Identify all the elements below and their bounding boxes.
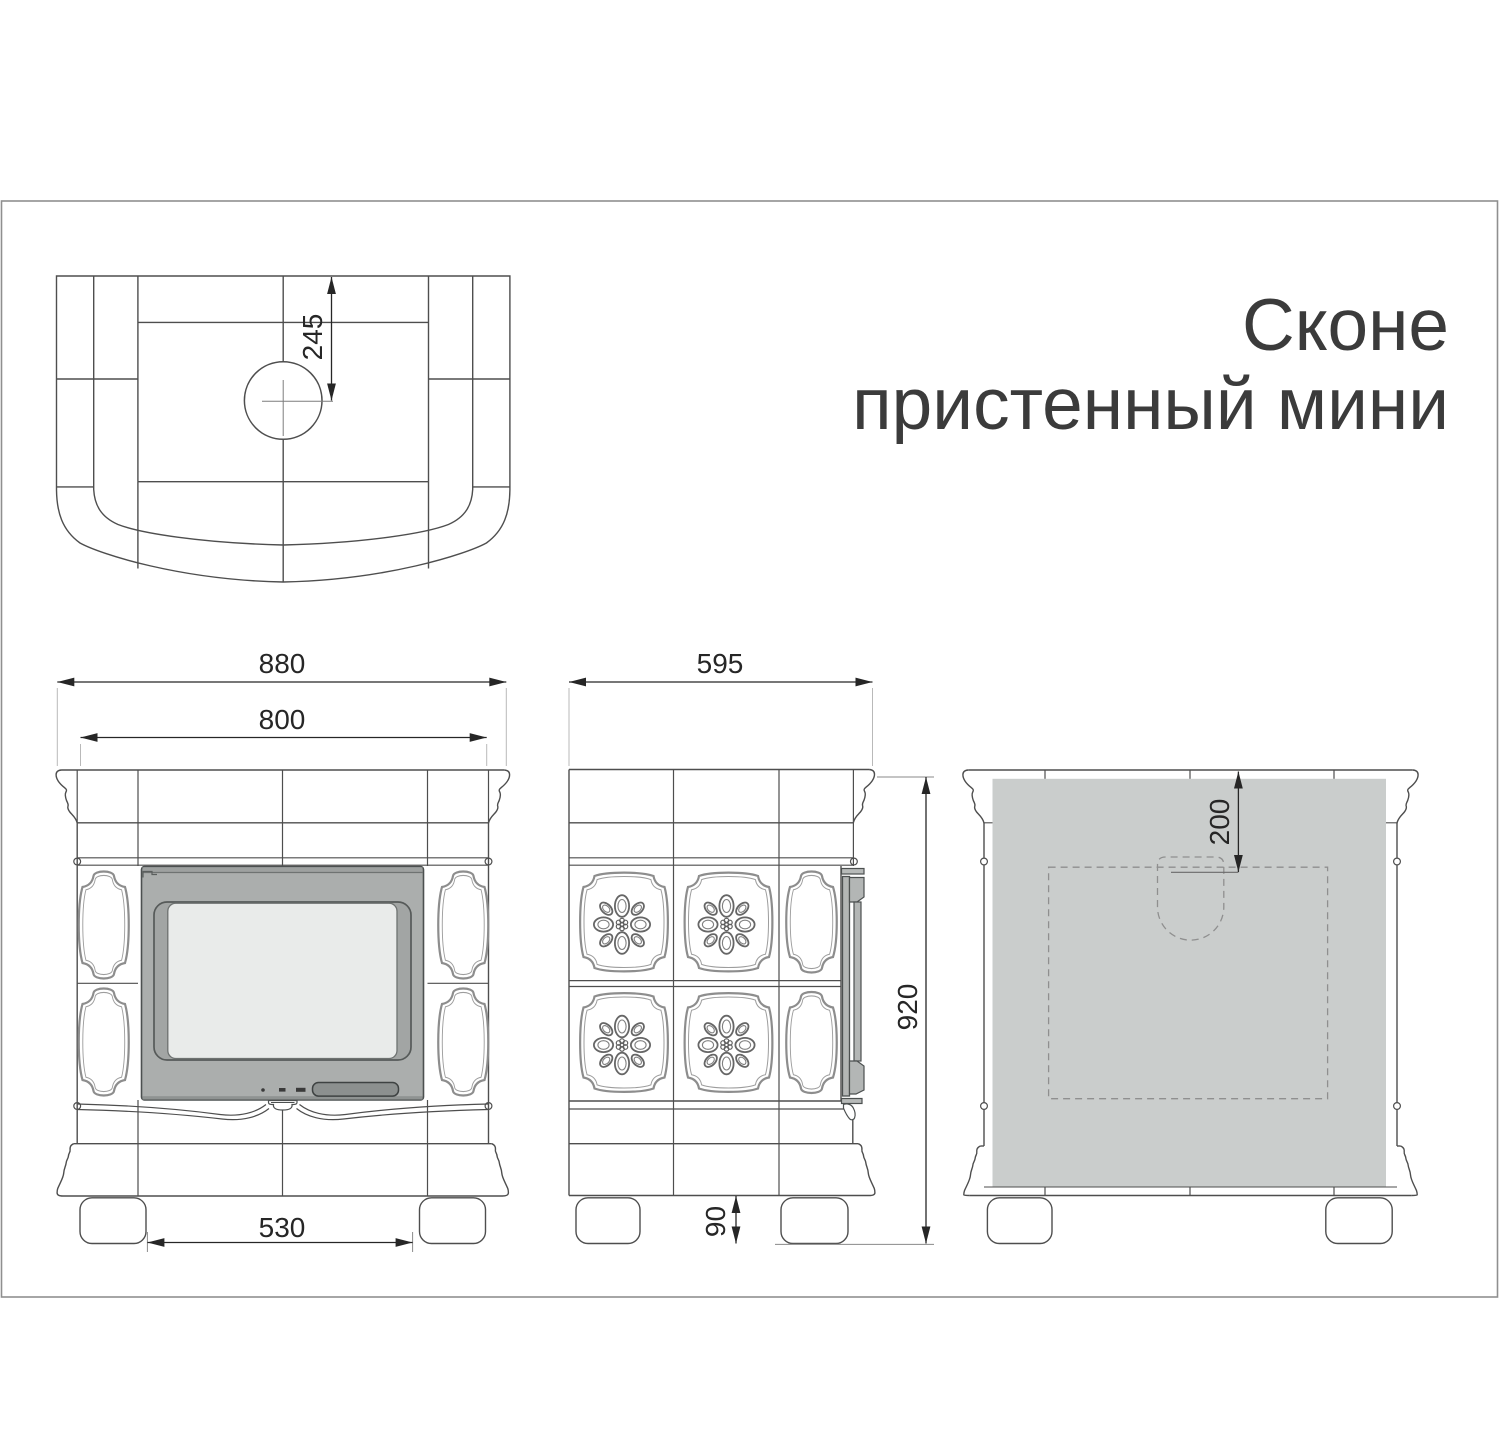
svg-text:пристенный мини: пристенный мини	[852, 364, 1449, 445]
svg-text:245: 245	[297, 314, 328, 361]
svg-text:Сконе: Сконе	[1242, 285, 1449, 366]
svg-text:800: 800	[259, 704, 306, 735]
svg-text:880: 880	[259, 648, 306, 679]
svg-text:530: 530	[259, 1212, 306, 1243]
svg-text:90: 90	[700, 1206, 731, 1237]
svg-text:200: 200	[1204, 799, 1235, 846]
svg-text:595: 595	[697, 648, 744, 679]
svg-text:920: 920	[892, 984, 923, 1031]
